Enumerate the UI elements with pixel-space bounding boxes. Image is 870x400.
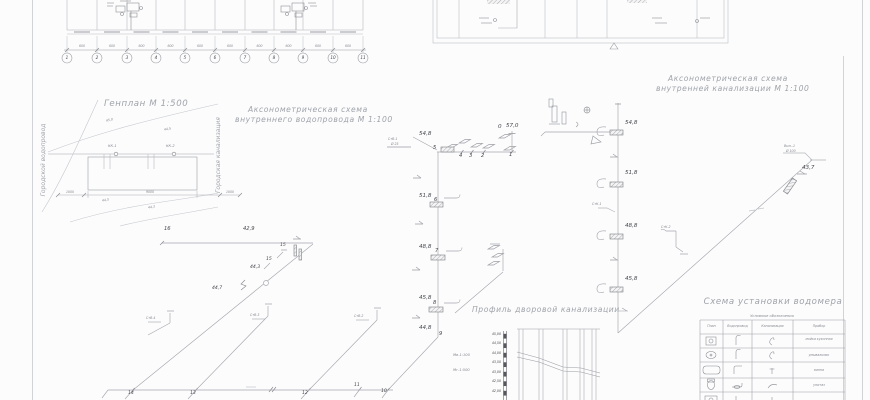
elevation-value: 45,8 [419, 296, 431, 302]
profile-elevation: 43,00 [484, 371, 501, 374]
node-number: 14 [128, 392, 134, 397]
site-basement-plan-lines [433, 0, 728, 49]
floor-plan-lines [62, 0, 368, 63]
node-number: 15 [280, 244, 286, 249]
dim-label: 600 [340, 45, 356, 48]
node-number: 12 [302, 392, 308, 397]
pipe-break-symbol [241, 280, 246, 290]
node-number: 16 [164, 227, 171, 232]
legend-row-label: мойка кухонная [797, 337, 841, 341]
dim-label: 600 [252, 45, 268, 48]
riser-tag: СтВ-2 [354, 315, 363, 318]
water-meter-circle [264, 281, 269, 286]
sewer-scheme-title-line1: Аксонометрическая схема [668, 75, 788, 83]
genplan-dim: 1000 [60, 191, 80, 194]
well-label: КК-1 [108, 145, 117, 149]
profile-title: Профиль дворовой канализации [472, 306, 620, 314]
dim-label: 600 [281, 45, 297, 48]
axis-label: 2 [92, 56, 102, 60]
fixture-cluster-left [107, 1, 143, 30]
elevation-value: 42,9 [243, 227, 255, 232]
sewer-scheme-title-line2: внутренней канализации М 1:100 [656, 85, 809, 93]
riser-tag: СтВ-4 [146, 317, 155, 320]
vertical-scale-label: Мв-1:100 [453, 354, 470, 358]
dim-label: 600 [310, 45, 326, 48]
dim-label: 600 [74, 45, 90, 48]
elevation-value: 54,8 [419, 132, 431, 138]
profile-elevation: 44,50 [484, 342, 501, 345]
legend-row-label: унитаз [797, 384, 841, 387]
node-number: 8 [433, 301, 436, 306]
node-number: 4 [459, 154, 462, 159]
axis-label: 7 [240, 56, 250, 60]
outlet-tag: Вып.-1 [784, 145, 795, 148]
profile-elevation: 42,50 [484, 380, 501, 383]
well-label: КК-2 [166, 145, 175, 149]
node-number: 0 [498, 125, 502, 131]
legend-col-header: Канализация [752, 325, 793, 328]
profile-lines [504, 308, 629, 400]
elevation-value: 51,8 [419, 194, 431, 200]
axis-label: 6 [210, 56, 220, 60]
dim-label: 600 [192, 45, 208, 48]
legend-title: Условные обозначения [692, 315, 852, 319]
elevation-value: 54,8 [625, 121, 637, 127]
dim-label: 600 [222, 45, 238, 48]
dim-label: 600 [104, 45, 120, 48]
node-number: 3 [469, 154, 472, 159]
node-number: 7 [435, 249, 438, 254]
axis-label: 3 [122, 56, 132, 60]
node-number: 2 [481, 154, 484, 159]
legend-col-header: Прибор [793, 325, 845, 328]
axis-label: 11 [358, 56, 368, 60]
city-sewer-main-label: Городская канализация [216, 90, 222, 220]
genplan-dim: 9000 [138, 191, 162, 194]
dim-label: 600 [163, 45, 179, 48]
elevation-value: 44,8 [419, 326, 431, 332]
elevation-value: 51,8 [625, 171, 637, 177]
horizontal-scale-label: Мг-1:500 [453, 369, 470, 373]
dim-label: 600 [134, 45, 150, 48]
genplan-lines [42, 100, 242, 226]
genplan-dim: 1000 [220, 191, 240, 194]
elevation-value: 57,0 [506, 124, 518, 130]
vent-triangle-symbol [591, 136, 601, 144]
profile-scale-bar [504, 334, 507, 396]
profile-elevation: 44,00 [484, 352, 501, 355]
drawing-sheet: 1 2 3 4 5 6 7 8 9 10 11 600 600 600 600 … [0, 0, 870, 400]
node-number: 13 [190, 392, 196, 397]
legend-table-lines [700, 320, 845, 400]
axis-label: 10 [328, 56, 338, 60]
fixture-symbols [446, 135, 516, 151]
water-scheme-lines [102, 131, 516, 399]
elevation-value: 48,8 [419, 245, 431, 251]
axis-label: 9 [298, 56, 308, 60]
elevation-value: 45,8 [625, 277, 637, 283]
profile-elevation: 43,50 [484, 361, 501, 364]
legend-sewer-icons [768, 338, 777, 400]
genplan-title: Генплан М 1:500 [104, 100, 188, 109]
pipe-break-symbol-2 [269, 387, 276, 392]
legend-row-label: ванна [797, 369, 841, 372]
node-number: 10 [381, 390, 387, 395]
sanitary-fixtures [549, 99, 601, 144]
node-number: 6 [434, 198, 437, 203]
legend-row-label: умывальник [797, 354, 841, 357]
riser-tag: СтВ-3 [250, 314, 259, 317]
water-scheme-title-line1: Аксонометрическая схема [248, 106, 368, 114]
legend-col-header: План [700, 325, 723, 328]
riser-tag: СтВ-1 [388, 138, 397, 141]
meter-title: Схема установки водомера [692, 298, 854, 307]
elevation-value: 44,3 [250, 266, 260, 271]
outlet-diameter: Ø 100 [786, 150, 796, 153]
legend-water-icons [732, 336, 742, 400]
profile-elevation: 42,00 [484, 390, 501, 393]
riser-tag: СтК-2 [661, 226, 671, 229]
city-water-main-label: Городской водопровод [41, 95, 47, 225]
legend-col-header: Водопровод [723, 325, 752, 328]
axis-label: 1 [62, 56, 72, 60]
water-scheme-title-line2: внутреннего водопровода М 1:100 [235, 116, 393, 124]
riser-tag: СтК-1 [592, 203, 602, 206]
elevation-value: 44,7 [212, 287, 222, 292]
elevation-value: 43,7 [802, 166, 814, 172]
node-number: 9 [439, 332, 442, 337]
legend-plan-icons [703, 337, 720, 400]
elevation-value: 48,8 [625, 224, 637, 230]
axis-label: 4 [151, 56, 161, 60]
node-number: 15 [266, 258, 272, 263]
node-number: 11 [354, 384, 360, 389]
profile-elevation: 45,00 [484, 333, 501, 336]
riser-diameter: Ø 25 [391, 143, 399, 146]
node-number: 5 [433, 146, 436, 151]
axis-label: 8 [269, 56, 279, 60]
fixture-cluster-right [281, 3, 317, 30]
axis-label: 5 [180, 56, 190, 60]
node-number: 1 [509, 153, 512, 158]
